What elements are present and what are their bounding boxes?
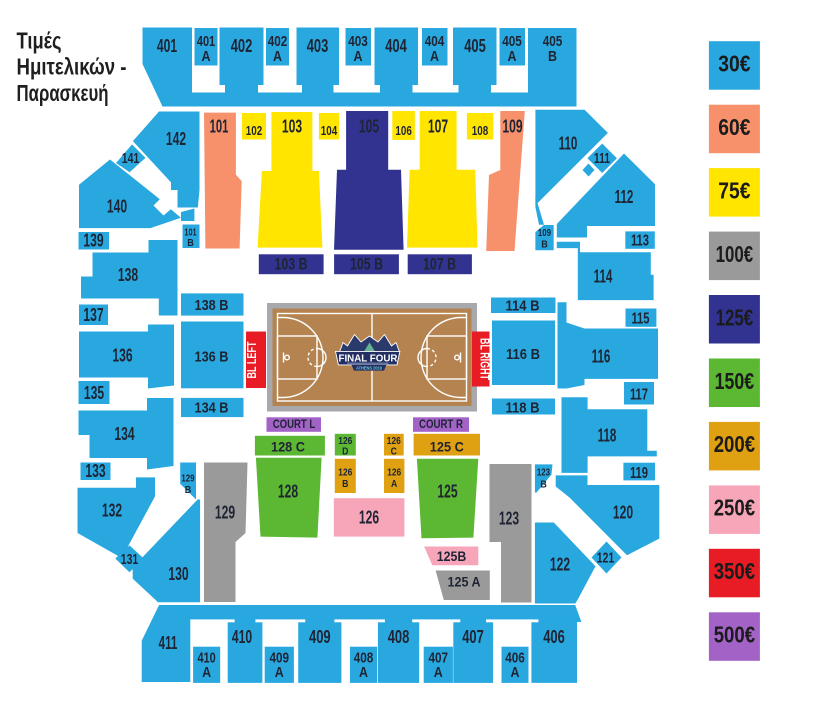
svg-text:402: 402 — [268, 34, 288, 50]
svg-text:B: B — [548, 49, 557, 65]
svg-text:132: 132 — [102, 500, 122, 521]
svg-text:A: A — [430, 49, 439, 65]
svg-text:405: 405 — [464, 35, 486, 56]
svg-text:117: 117 — [630, 387, 648, 404]
svg-text:140: 140 — [107, 196, 127, 217]
svg-text:410: 410 — [232, 626, 252, 647]
svg-text:D: D — [342, 447, 348, 458]
svg-text:109: 109 — [538, 227, 551, 239]
svg-text:134: 134 — [114, 423, 135, 444]
svg-text:114 B: 114 B — [506, 298, 540, 315]
svg-text:129: 129 — [181, 473, 194, 485]
svg-text:128 C: 128 C — [271, 439, 305, 455]
svg-text:Ημιτελικών -: Ημιτελικών - — [17, 54, 127, 80]
svg-text:112: 112 — [615, 186, 634, 207]
svg-text:408: 408 — [388, 626, 410, 647]
svg-text:125: 125 — [437, 481, 457, 502]
svg-text:136 B: 136 B — [195, 349, 229, 366]
svg-text:107: 107 — [428, 116, 448, 137]
svg-text:ATHENS 2019: ATHENS 2019 — [356, 365, 382, 370]
svg-text:133: 133 — [85, 460, 105, 481]
svg-text:139: 139 — [83, 230, 103, 251]
svg-text:150€: 150€ — [715, 368, 755, 394]
svg-text:107 B: 107 B — [423, 255, 456, 274]
svg-text:A: A — [202, 665, 211, 681]
svg-text:137: 137 — [83, 304, 103, 325]
svg-text:COURT R: COURT R — [419, 417, 463, 431]
svg-text:123: 123 — [499, 508, 519, 529]
svg-text:141: 141 — [122, 150, 140, 167]
svg-text:121: 121 — [597, 550, 615, 567]
svg-text:250€: 250€ — [714, 495, 756, 521]
svg-text:A: A — [275, 665, 284, 681]
svg-text:125B: 125B — [437, 549, 467, 564]
svg-text:142: 142 — [166, 128, 186, 149]
svg-text:125 A: 125 A — [448, 575, 481, 590]
svg-text:131: 131 — [121, 551, 139, 568]
svg-text:401: 401 — [157, 35, 177, 56]
svg-text:106: 106 — [395, 123, 411, 138]
svg-text:104: 104 — [321, 123, 338, 138]
svg-text:402: 402 — [231, 35, 253, 56]
svg-text:114: 114 — [594, 266, 613, 287]
svg-text:409: 409 — [309, 626, 331, 647]
svg-text:A: A — [391, 479, 397, 490]
svg-text:100€: 100€ — [716, 241, 754, 267]
svg-text:103 B: 103 B — [275, 255, 308, 274]
svg-text:126: 126 — [359, 507, 379, 528]
svg-text:111: 111 — [594, 150, 610, 167]
svg-text:BL RIGHT: BL RIGHT — [478, 338, 492, 380]
svg-text:A: A — [273, 49, 282, 65]
svg-text:125€: 125€ — [716, 304, 754, 330]
svg-text:A: A — [511, 665, 520, 681]
svg-text:126: 126 — [387, 436, 401, 447]
svg-text:119: 119 — [630, 465, 648, 482]
svg-text:500€: 500€ — [714, 622, 756, 648]
svg-text:113: 113 — [631, 233, 649, 250]
svg-text:120: 120 — [613, 502, 633, 523]
svg-text:128: 128 — [278, 481, 298, 502]
svg-text:B: B — [187, 237, 194, 249]
svg-text:403: 403 — [348, 34, 368, 50]
svg-text:Παρασκευή: Παρασκευή — [17, 80, 109, 106]
svg-text:411: 411 — [159, 632, 178, 653]
svg-text:A: A — [202, 49, 211, 65]
svg-text:122: 122 — [550, 554, 570, 575]
svg-text:A: A — [508, 49, 517, 65]
svg-text:129: 129 — [215, 502, 235, 523]
svg-text:B: B — [541, 239, 548, 251]
svg-text:126: 126 — [338, 468, 352, 479]
svg-text:405: 405 — [502, 34, 522, 50]
svg-text:Τιμές: Τιμές — [17, 27, 62, 53]
svg-text:350€: 350€ — [714, 558, 756, 584]
svg-text:116 B: 116 B — [506, 346, 540, 363]
svg-text:A: A — [354, 49, 363, 65]
svg-text:101: 101 — [210, 116, 229, 137]
svg-text:116: 116 — [592, 346, 611, 367]
svg-text:A: A — [359, 665, 368, 681]
svg-text:403: 403 — [307, 35, 329, 56]
svg-text:138: 138 — [118, 264, 138, 285]
svg-text:A: A — [434, 665, 443, 681]
svg-text:102: 102 — [246, 123, 262, 138]
svg-text:126: 126 — [338, 436, 352, 447]
svg-text:118 B: 118 B — [506, 400, 540, 417]
svg-text:406: 406 — [543, 626, 565, 647]
svg-text:109: 109 — [502, 116, 522, 137]
svg-text:401: 401 — [197, 34, 215, 50]
svg-text:60€: 60€ — [718, 114, 750, 140]
svg-text:118: 118 — [598, 425, 617, 446]
svg-text:108: 108 — [472, 123, 488, 138]
svg-text:103: 103 — [282, 116, 302, 137]
svg-text:126: 126 — [387, 468, 401, 479]
svg-text:404: 404 — [385, 35, 407, 56]
svg-text:30€: 30€ — [718, 51, 750, 77]
svg-text:B: B — [185, 484, 192, 496]
svg-text:405: 405 — [543, 34, 563, 50]
svg-text:125 C: 125 C — [430, 439, 464, 455]
svg-text:404: 404 — [425, 34, 445, 50]
svg-text:C: C — [391, 447, 397, 458]
svg-text:200€: 200€ — [714, 431, 756, 457]
svg-text:130: 130 — [168, 563, 188, 584]
svg-text:B: B — [342, 479, 348, 490]
svg-text:134 B: 134 B — [195, 400, 229, 417]
svg-text:136: 136 — [112, 345, 132, 366]
svg-text:135: 135 — [84, 382, 104, 403]
svg-text:105: 105 — [359, 116, 379, 137]
svg-text:105 B: 105 B — [350, 255, 383, 274]
svg-text:75€: 75€ — [718, 177, 750, 203]
svg-text:110: 110 — [559, 133, 578, 154]
svg-text:COURT L: COURT L — [273, 417, 316, 431]
svg-text:BL LEFT: BL LEFT — [245, 341, 259, 378]
svg-text:138 B: 138 B — [195, 297, 229, 314]
svg-text:123: 123 — [537, 467, 550, 479]
svg-text:407: 407 — [462, 626, 484, 647]
svg-text:115: 115 — [631, 311, 649, 328]
svg-text:B: B — [540, 479, 547, 491]
